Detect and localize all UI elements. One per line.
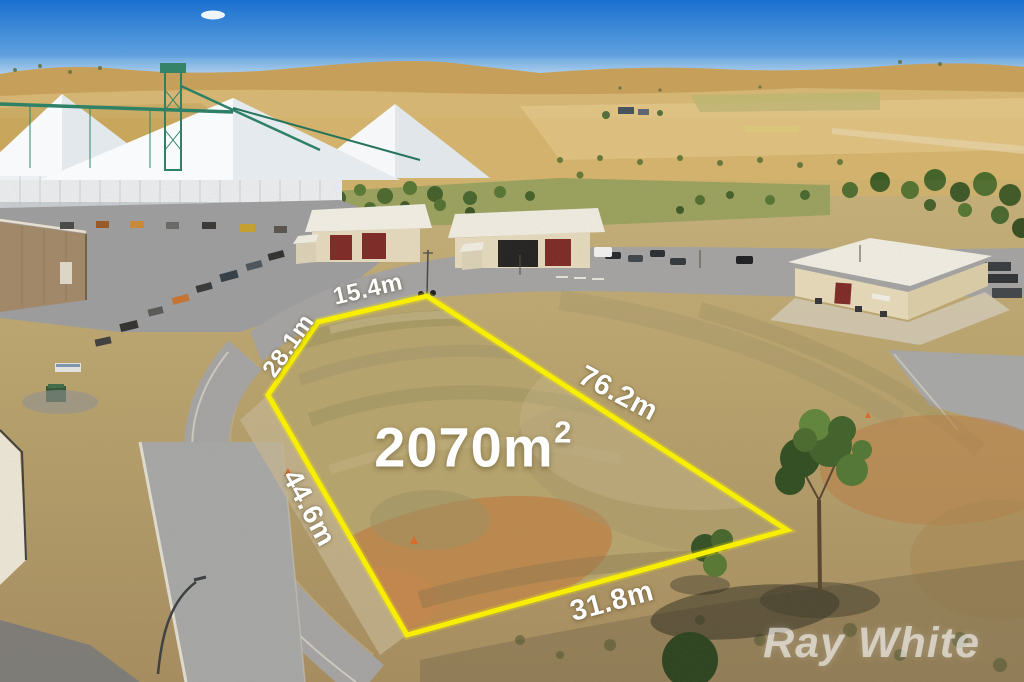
- lot-boundary-overlay: [0, 0, 1024, 682]
- lot-area-value: 2070m: [374, 416, 553, 479]
- ray-white-watermark: Ray White: [763, 619, 980, 668]
- aerial-photo-stage: 15.4m 28.1m 76.2m 44.6m 31.8m 2070m2 Ray…: [0, 0, 1024, 682]
- lot-area-label: 2070m2: [374, 415, 572, 480]
- lot-area-superscript: 2: [554, 414, 572, 449]
